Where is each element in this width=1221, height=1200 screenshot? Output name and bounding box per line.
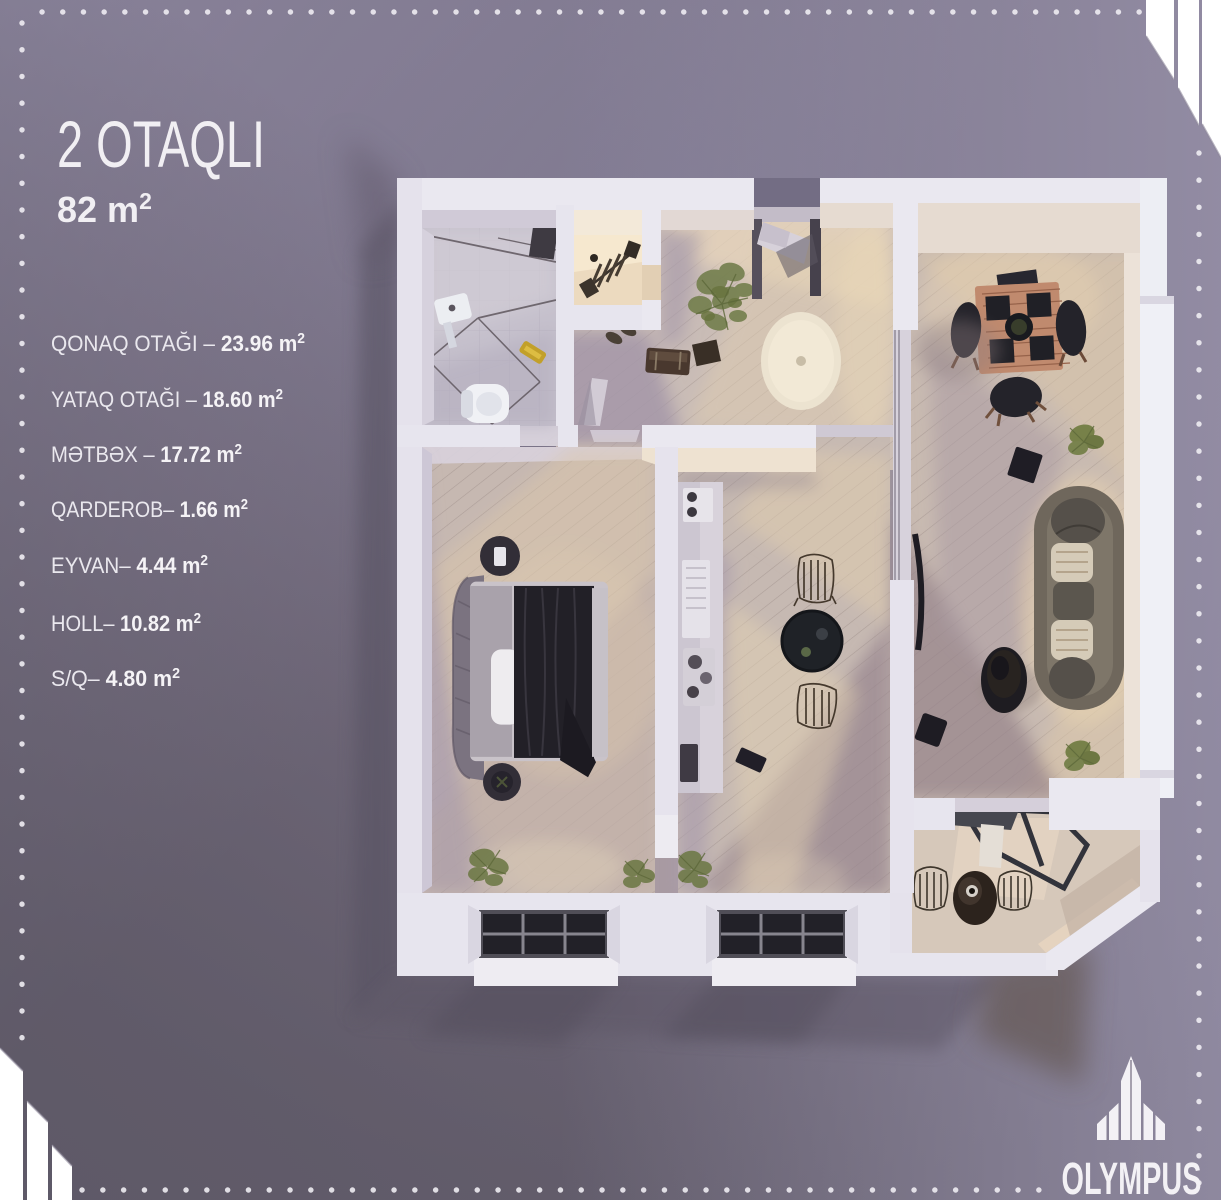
svg-text:EYVAN– 4.44 m2: EYVAN– 4.44 m2 bbox=[51, 552, 208, 578]
svg-text:QONAQ OTAĞI – 23.96 m2: QONAQ OTAĞI – 23.96 m2 bbox=[51, 330, 305, 356]
svg-text:YATAQ OTAĞI – 18.60 m2: YATAQ OTAĞI – 18.60 m2 bbox=[51, 386, 283, 412]
svg-text:2 OTAQLI: 2 OTAQLI bbox=[57, 107, 265, 181]
svg-text:82 m2: 82 m2 bbox=[57, 188, 152, 230]
svg-text:S/Q– 4.80 m2: S/Q– 4.80 m2 bbox=[51, 665, 180, 691]
svg-text:MƏTBƏX – 17.72 m2: MƏTBƏX – 17.72 m2 bbox=[51, 441, 242, 467]
svg-text:QARDEROB– 1.66 m2: QARDEROB– 1.66 m2 bbox=[51, 496, 248, 522]
svg-text:HOLL– 10.82 m2: HOLL– 10.82 m2 bbox=[51, 610, 201, 636]
svg-text:OLYMPUS: OLYMPUS bbox=[1062, 1153, 1202, 1200]
